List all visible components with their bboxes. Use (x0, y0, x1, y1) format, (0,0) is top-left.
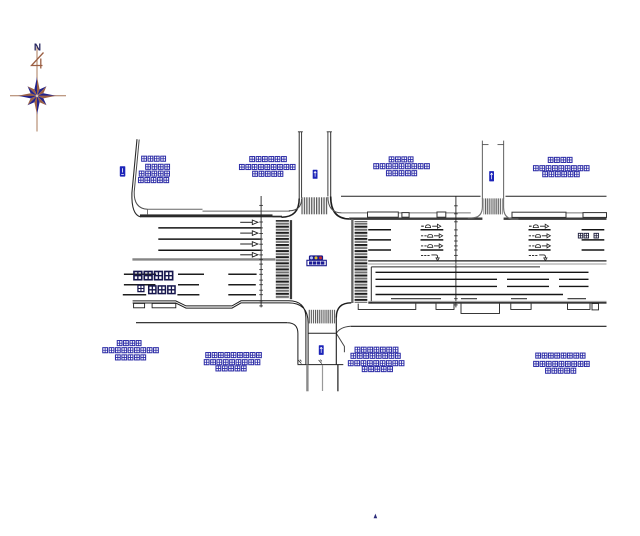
svg-text:N: N (34, 43, 41, 54)
